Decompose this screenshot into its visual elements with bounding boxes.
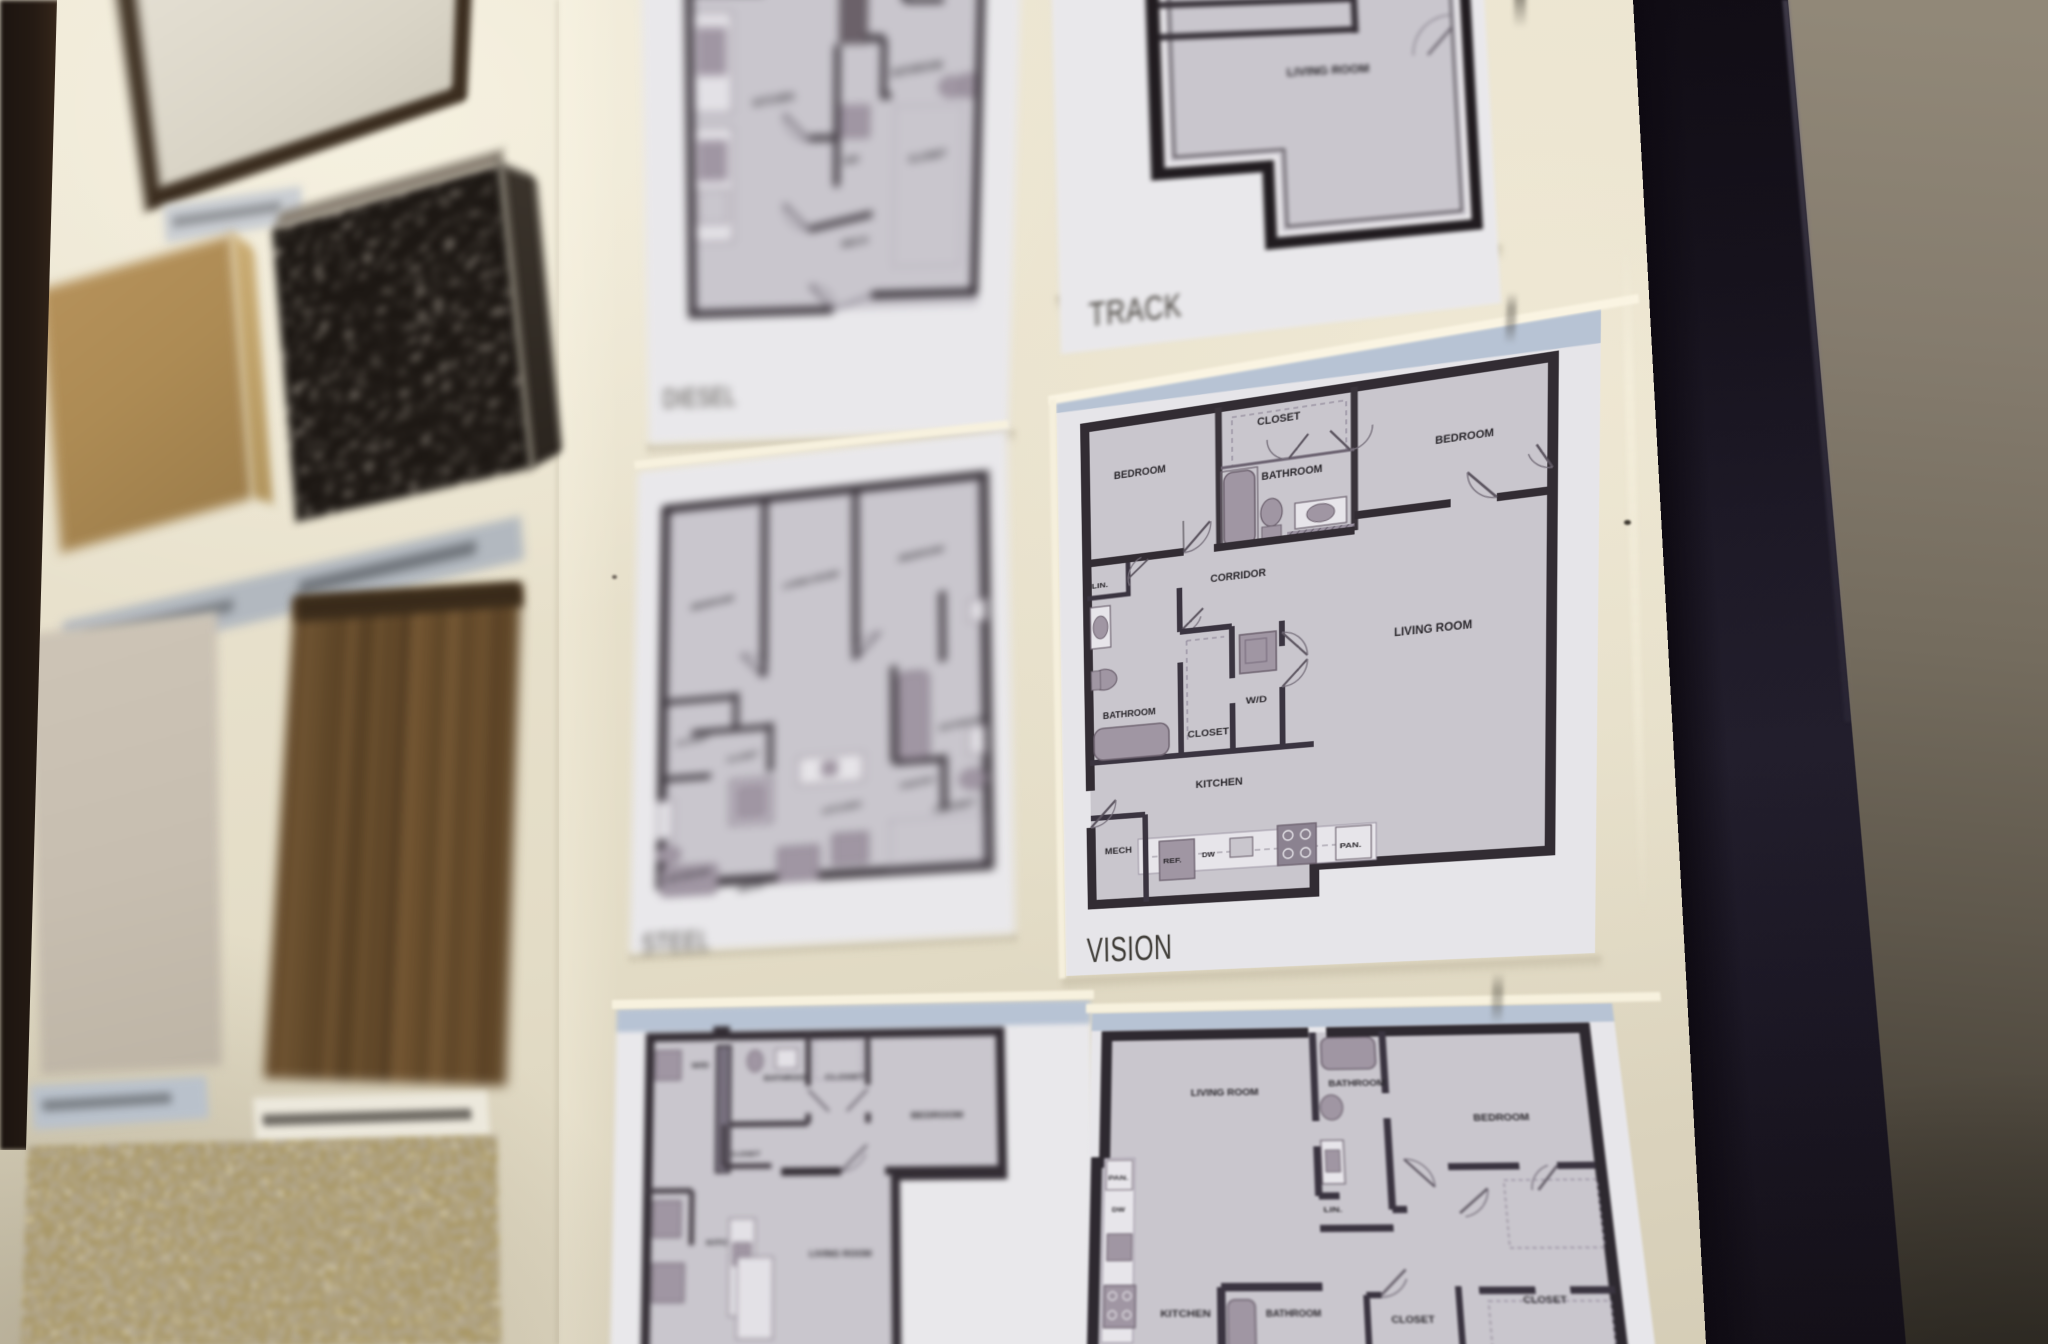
svg-text:BEDROOM: BEDROOM (1473, 1112, 1530, 1124)
svg-text:DW: DW (1112, 1207, 1125, 1215)
svg-text:KITCHEN: KITCHEN (1160, 1308, 1211, 1320)
svg-text:W/D: W/D (1246, 694, 1268, 706)
svg-text:CLOSET: CLOSET (1523, 1294, 1568, 1306)
svg-text:LIN.: LIN. (1323, 1207, 1343, 1215)
svg-text:DW: DW (1202, 852, 1215, 859)
svg-text:MECH: MECH (1105, 845, 1133, 856)
svg-text:BATHROOM: BATHROOM (1328, 1077, 1385, 1088)
svg-text:CLOSET: CLOSET (825, 1073, 866, 1081)
svg-text:CLOSET: CLOSET (729, 1152, 761, 1159)
svg-text:PAN.: PAN. (1108, 1175, 1129, 1183)
svg-text:W/D: W/D (691, 1062, 709, 1070)
svg-text:BATHROOM: BATHROOM (1266, 1307, 1322, 1319)
svg-text:BATHROOM: BATHROOM (764, 1074, 812, 1082)
svg-text:REF.: REF. (1163, 858, 1182, 866)
svg-text:LIVING ROOM: LIVING ROOM (1191, 1086, 1259, 1099)
svg-text:BEDROOM: BEDROOM (911, 1110, 963, 1121)
svg-text:LIVING ROOM: LIVING ROOM (809, 1248, 872, 1259)
svg-text:PAN.: PAN. (1340, 842, 1362, 850)
svg-text:CLOSET: CLOSET (1391, 1313, 1435, 1325)
